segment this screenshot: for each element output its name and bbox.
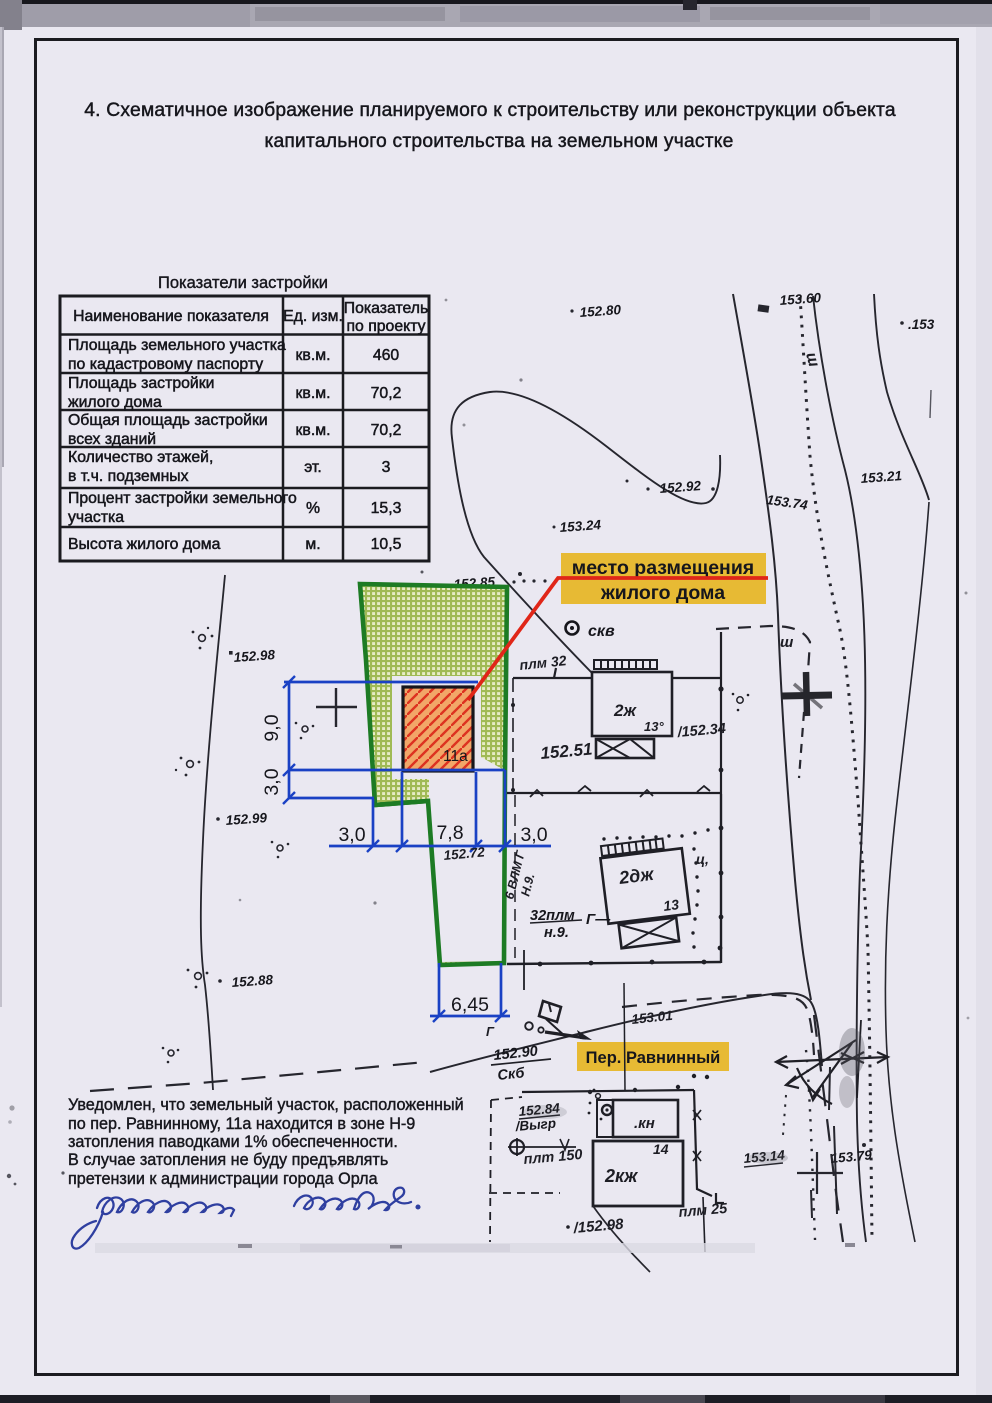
svg-text:70,2: 70,2 xyxy=(371,385,402,402)
svg-text:153.60: 153.60 xyxy=(779,290,822,308)
svg-text:.153: .153 xyxy=(908,317,935,332)
svg-text:70,2: 70,2 xyxy=(371,422,402,439)
svg-text:13: 13 xyxy=(662,896,680,914)
svg-text:по пер. Равнинному, 11а находи: по пер. Равнинному, 11а находится в зоне… xyxy=(68,1115,415,1133)
svg-text:Общая площадь застройки: Общая площадь застройки xyxy=(68,412,268,429)
svg-text:кв.м.: кв.м. xyxy=(296,347,331,364)
svg-text:ш: ш xyxy=(780,634,794,651)
svg-text:6,45: 6,45 xyxy=(451,994,489,1016)
svg-text:м.: м. xyxy=(305,536,320,553)
svg-text:3,0: 3,0 xyxy=(520,824,547,846)
svg-text:.кн: .кн xyxy=(634,1115,655,1132)
svg-text:153.21: 153.21 xyxy=(860,468,902,486)
svg-text:152.99: 152.99 xyxy=(225,810,268,828)
svg-text:ц,: ц, xyxy=(696,851,709,867)
svg-text:Наименование показателя: Наименование показателя xyxy=(73,308,269,325)
svg-text:Высота жилого дома: Высота жилого дома xyxy=(68,536,221,553)
svg-text:Количество этажей,: Количество этажей, xyxy=(68,449,213,466)
svg-text:152.80: 152.80 xyxy=(579,302,622,320)
svg-text:Процент застройки земельного: Процент застройки земельного xyxy=(68,490,297,507)
svg-text:152.88: 152.88 xyxy=(231,972,274,990)
svg-text:по кадастровому паспорту: по кадастровому паспорту xyxy=(68,356,263,373)
svg-text:Показатель: Показатель xyxy=(344,300,428,317)
svg-text:Пер. Равнинный: Пер. Равнинный xyxy=(586,1049,721,1067)
svg-text:по проекту: по проекту xyxy=(346,318,425,335)
svg-text:Уведомлен, что земельный участ: Уведомлен, что земельный участок, распол… xyxy=(68,1096,464,1114)
svg-text:153.24: 153.24 xyxy=(559,517,602,535)
svg-text:Скб: Скб xyxy=(497,1065,527,1084)
svg-text:кв.м.: кв.м. xyxy=(296,422,331,439)
svg-text:в т.ч. подземных: в т.ч. подземных xyxy=(68,468,189,485)
svg-text:участка: участка xyxy=(68,509,124,526)
svg-text:3,0: 3,0 xyxy=(338,824,365,846)
svg-text:13°: 13° xyxy=(644,719,664,734)
svg-text:Площадь земельного участка: Площадь земельного участка xyxy=(68,337,286,354)
svg-text:Показатели застройки: Показатели застройки xyxy=(158,274,328,292)
svg-text:место размещения: место размещения xyxy=(572,557,754,579)
svg-text:152.92: 152.92 xyxy=(659,478,702,496)
svg-text:14: 14 xyxy=(653,1141,669,1157)
svg-text:10,5: 10,5 xyxy=(371,536,402,553)
svg-text:3,0: 3,0 xyxy=(261,768,283,795)
svg-text:затопления паводками 1% обеспе: затопления паводками 1% обеспеченности. xyxy=(68,1133,398,1151)
svg-text:3: 3 xyxy=(382,459,391,476)
svg-text:4. Схематичное изображение пла: 4. Схематичное изображение планируемого … xyxy=(84,100,896,121)
svg-text:2ж: 2ж xyxy=(613,701,637,720)
svg-text:н.9.: н.9. xyxy=(544,925,569,941)
svg-text:эт.: эт. xyxy=(304,459,322,476)
svg-text:152.98: 152.98 xyxy=(233,647,276,665)
svg-text:Г: Г xyxy=(486,1024,495,1039)
svg-text:Площадь застройки: Площадь застройки xyxy=(68,375,214,392)
svg-text:скв: скв xyxy=(588,623,615,640)
svg-text:жилого дома: жилого дома xyxy=(600,582,725,604)
svg-text:11а: 11а xyxy=(443,748,468,765)
svg-text:7,8: 7,8 xyxy=(436,822,463,844)
svg-text:В случае затопления не буду пр: В случае затопления не буду предъявлять xyxy=(68,1151,388,1169)
svg-text:2кж: 2кж xyxy=(604,1166,639,1186)
svg-text:9,0: 9,0 xyxy=(261,714,283,741)
svg-text:%: % xyxy=(306,500,320,517)
svg-text:460: 460 xyxy=(373,347,400,364)
svg-text:Г—: Г— xyxy=(586,911,611,928)
svg-text:капитального строительства на: капитального строительства на земельном … xyxy=(264,131,733,152)
svg-text:кв.м.: кв.м. xyxy=(296,385,331,402)
svg-text:15,3: 15,3 xyxy=(371,500,402,517)
svg-text:претензии к администрации горо: претензии к администрации города Орла xyxy=(68,1170,378,1188)
svg-text:Ед. изм.: Ед. изм. xyxy=(283,308,343,325)
svg-text:жилого дома: жилого дома xyxy=(68,394,162,411)
svg-text:всех зданий: всех зданий xyxy=(68,431,156,448)
